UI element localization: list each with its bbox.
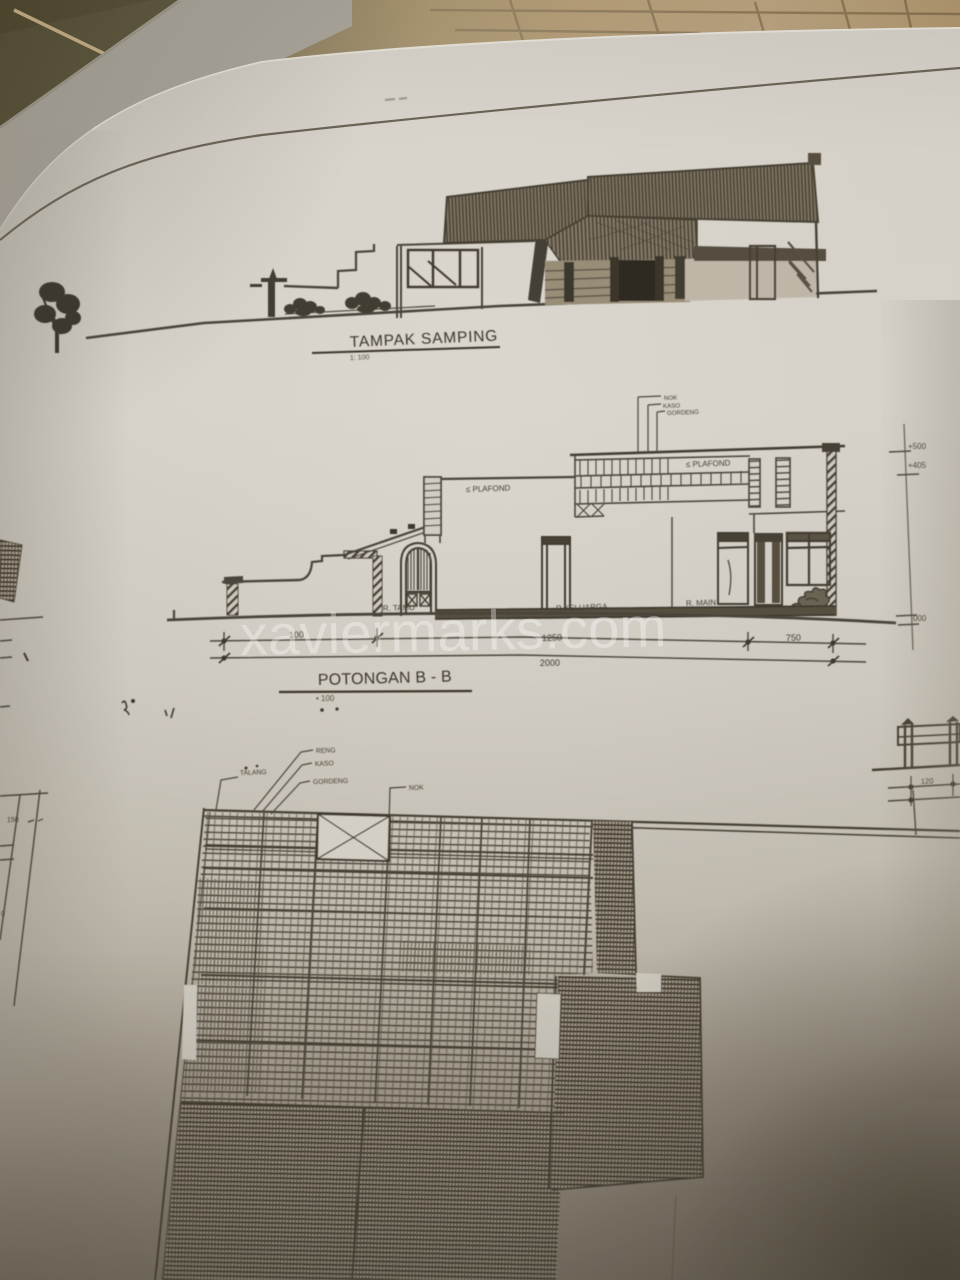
svg-text:NOK: NOK bbox=[664, 395, 679, 402]
svg-text:GORDENG: GORDENG bbox=[667, 409, 699, 417]
svg-text:≤ PLAFOND: ≤ PLAFOND bbox=[466, 483, 511, 494]
svg-text:≤ PLAFOND: ≤ PLAFOND bbox=[686, 458, 731, 469]
svg-text:xaviermarks.com: xaviermarks.com bbox=[239, 595, 667, 667]
svg-text:POTONGAN B - B: POTONGAN B - B bbox=[318, 668, 452, 689]
svg-text:1: 100: 1: 100 bbox=[350, 354, 370, 362]
svg-text:NOK: NOK bbox=[409, 784, 424, 792]
svg-text:150: 150 bbox=[7, 817, 19, 824]
svg-text:KASO: KASO bbox=[315, 760, 334, 768]
svg-text:• 100: • 100 bbox=[316, 694, 335, 703]
svg-text:RENG: RENG bbox=[316, 747, 336, 755]
svg-text:GORDENG: GORDENG bbox=[313, 778, 348, 786]
svg-text:750: 750 bbox=[786, 632, 801, 643]
svg-text:TALANG: TALANG bbox=[240, 769, 267, 777]
svg-text:R. MAIN: R. MAIN bbox=[686, 598, 717, 608]
